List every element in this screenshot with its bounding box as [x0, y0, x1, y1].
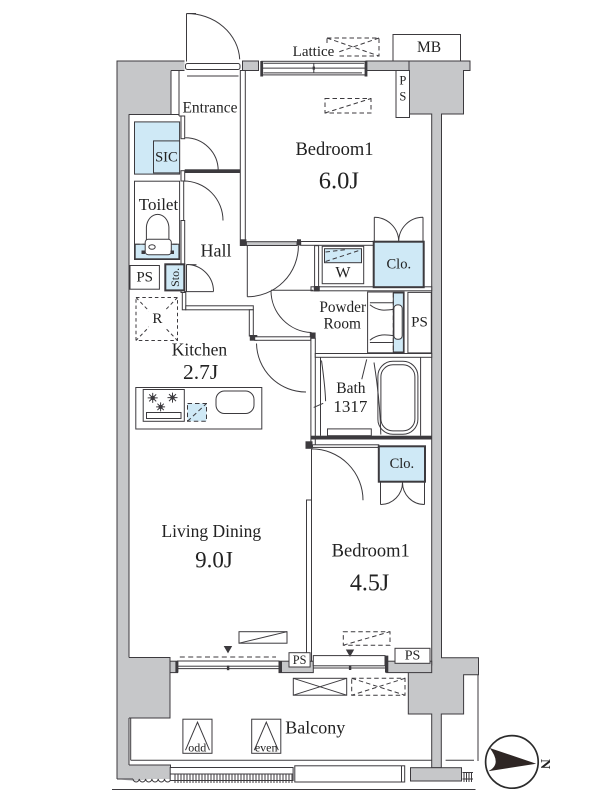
svg-text:Clo.: Clo. [390, 456, 415, 472]
svg-text:1317: 1317 [333, 397, 368, 416]
svg-text:S: S [399, 90, 406, 104]
svg-text:Room: Room [323, 316, 360, 333]
svg-text:Entrance: Entrance [182, 100, 237, 117]
svg-text:Lattice: Lattice [293, 44, 335, 60]
svg-text:Bedroom1: Bedroom1 [332, 542, 410, 562]
svg-text:P: P [399, 73, 406, 87]
svg-text:Bath: Bath [336, 380, 366, 397]
svg-text:4.5J: 4.5J [350, 571, 389, 597]
svg-text:odd: odd [188, 741, 206, 755]
svg-text:Clo.: Clo. [387, 257, 412, 273]
svg-text:PS: PS [136, 270, 153, 286]
svg-text:Kitchen: Kitchen [172, 340, 228, 360]
svg-text:W: W [335, 264, 351, 281]
svg-text:Hall: Hall [201, 241, 232, 261]
svg-text:PS: PS [405, 649, 421, 664]
svg-text:MB: MB [417, 39, 441, 56]
svg-text:Living Dining: Living Dining [161, 521, 261, 541]
svg-text:even: even [255, 741, 278, 755]
svg-text:Toilet: Toilet [139, 195, 179, 214]
svg-text:9.0J: 9.0J [195, 547, 233, 572]
svg-text:Sto.: Sto. [168, 268, 182, 287]
svg-text:Balcony: Balcony [285, 718, 345, 738]
svg-text:Bedroom1: Bedroom1 [295, 140, 373, 160]
svg-text:6.0J: 6.0J [319, 168, 360, 195]
svg-text:2.7J: 2.7J [183, 360, 218, 384]
svg-text:SIC: SIC [155, 150, 178, 166]
svg-text:N: N [537, 759, 552, 769]
svg-text:PS: PS [411, 315, 428, 331]
svg-text:Powder: Powder [319, 299, 366, 316]
svg-text:PS: PS [293, 653, 307, 667]
svg-text:R: R [152, 311, 162, 327]
